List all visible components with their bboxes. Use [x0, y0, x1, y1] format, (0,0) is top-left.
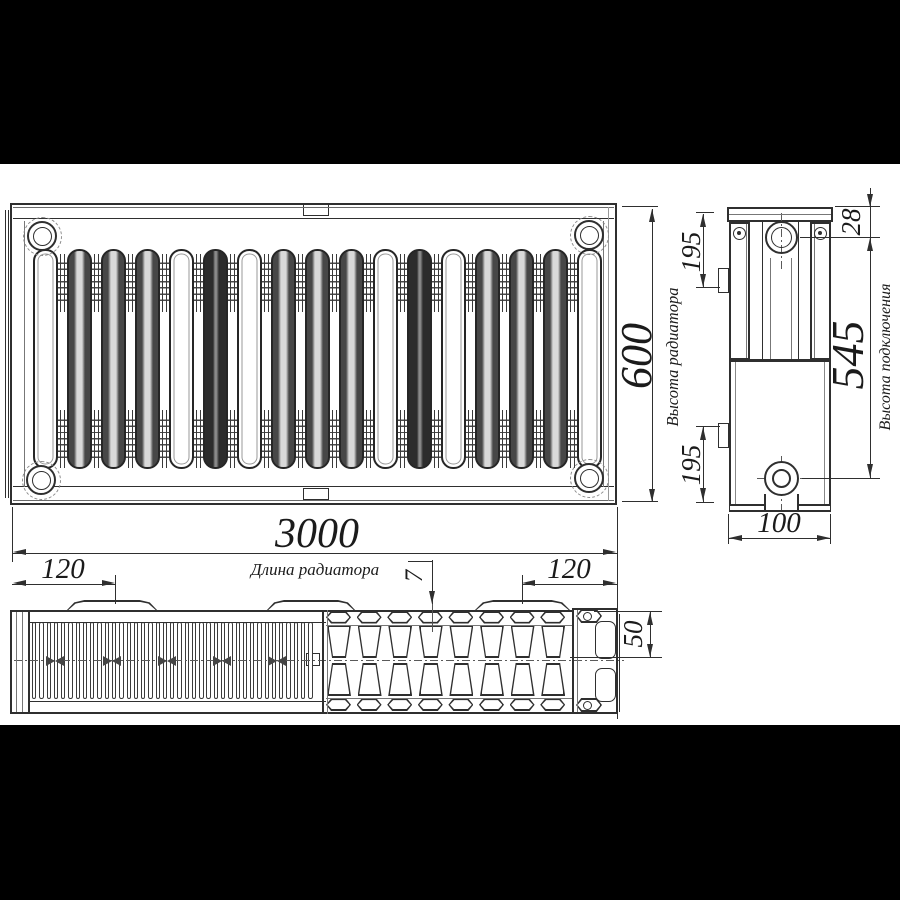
- line: [5, 210, 6, 498]
- bottom-port-inner: [772, 469, 791, 488]
- dim-bracket-left-value: 120: [18, 554, 108, 584]
- connector-tick: [570, 410, 571, 468]
- dim-height-value: 600: [613, 291, 661, 421]
- connector-tick: [472, 410, 473, 468]
- hexagon-inner: [358, 700, 380, 709]
- connector-tick: [132, 410, 133, 468]
- connector-tick: [438, 254, 439, 312]
- line: [696, 212, 714, 213]
- fin-slat: [577, 249, 602, 469]
- dim-connection-height-value: 545: [823, 290, 873, 420]
- line: [735, 362, 736, 504]
- connector-tick: [98, 254, 99, 312]
- connector-tick: [332, 410, 333, 468]
- bottom-center-clip: [303, 488, 329, 500]
- connector-tick: [434, 410, 435, 468]
- hexagon-inner: [511, 700, 533, 709]
- fin-slat: [237, 249, 262, 469]
- letterbox-bottom: [0, 725, 900, 900]
- fin-slat: [101, 249, 126, 469]
- fin-slat: [305, 249, 330, 469]
- connector-tick: [574, 254, 575, 312]
- connector-tick: [196, 410, 197, 468]
- line: [13, 207, 614, 208]
- dim-arrow: [867, 238, 873, 251]
- hexagon-inner: [450, 613, 472, 622]
- connector-tick: [162, 254, 163, 312]
- radiator-technical-drawing: 3000 Длина радиатора 600 Высота радиатор…: [0, 0, 900, 900]
- line: [326, 698, 572, 699]
- connector-tick: [438, 410, 439, 468]
- screw-inner-circle: [580, 469, 599, 488]
- cap-detail: [595, 621, 616, 659]
- line: [570, 657, 662, 658]
- dim-fin-gap-value: 7: [401, 556, 427, 596]
- connector-tick: [502, 410, 503, 468]
- hexagon-inner: [328, 613, 350, 622]
- hexagon-inner: [542, 613, 564, 622]
- hexagon-inner: [358, 613, 380, 622]
- connector-tick: [536, 410, 537, 468]
- connector-tick: [98, 410, 99, 468]
- dim-arrow: [647, 612, 653, 625]
- dim-depth-value: 100: [739, 509, 819, 537]
- line: [770, 258, 771, 360]
- topview-left-cap: [10, 610, 30, 714]
- hexagon-inner: [419, 700, 441, 709]
- side-top-cap: [727, 207, 833, 222]
- dim-length-label: Длина радиатора: [215, 558, 415, 580]
- fin-slat: [339, 249, 364, 469]
- screw-inner-circle: [32, 471, 51, 490]
- fin-slat: [33, 249, 58, 469]
- connector-tick: [400, 410, 401, 468]
- connector-tick: [60, 254, 61, 312]
- line: [791, 258, 792, 360]
- connector-tick: [60, 410, 61, 468]
- line: [30, 701, 326, 702]
- connector-tick: [128, 410, 129, 468]
- line: [729, 506, 730, 511]
- hexagon-inner: [481, 700, 503, 709]
- cap-bolt: [583, 701, 592, 710]
- dim-arrow: [647, 644, 653, 657]
- fin-slat: [407, 249, 432, 469]
- bowtie-mark: [46, 656, 55, 666]
- line: [798, 222, 799, 360]
- connector-tick: [302, 410, 303, 468]
- line: [814, 224, 815, 358]
- connector-tick: [200, 254, 201, 312]
- connector-tick: [264, 254, 265, 312]
- connector-tick: [370, 254, 371, 312]
- hexagon-inner: [542, 700, 564, 709]
- connector-tick: [268, 410, 269, 468]
- connector-tick: [400, 254, 401, 312]
- connector-tick: [366, 410, 367, 468]
- dim-length-value: 3000: [237, 512, 397, 556]
- line: [830, 514, 831, 544]
- line: [830, 506, 831, 511]
- connector-tick: [434, 254, 435, 312]
- connector-tick: [264, 410, 265, 468]
- fin-slat: [271, 249, 296, 469]
- connector-tick: [468, 254, 469, 312]
- connector-tick: [94, 254, 95, 312]
- line: [729, 214, 831, 215]
- connector-tick: [128, 254, 129, 312]
- dim-tab-top-value: 195: [676, 222, 706, 282]
- bowtie-mark: [103, 656, 112, 666]
- connector-tick: [536, 254, 537, 312]
- connector-tick: [298, 254, 299, 312]
- letterbox-top: [0, 0, 900, 164]
- connector-tick: [404, 254, 405, 312]
- connector-tick: [268, 254, 269, 312]
- line: [22, 612, 23, 712]
- connector-tick: [336, 410, 337, 468]
- hexagon-inner: [328, 700, 350, 709]
- connector-tick: [302, 254, 303, 312]
- connector-tick: [230, 410, 231, 468]
- connector-tick: [540, 254, 541, 312]
- fin-slat: [441, 249, 466, 469]
- line: [577, 610, 578, 712]
- cap-detail: [595, 668, 616, 702]
- line: [762, 222, 763, 360]
- bowtie-mark: [158, 656, 167, 666]
- line: [16, 612, 17, 712]
- line: [617, 507, 618, 719]
- dim-panel-depth-value: 50: [619, 606, 647, 662]
- line: [608, 207, 609, 501]
- hexagon-inner: [389, 613, 411, 622]
- line: [729, 359, 831, 361]
- line: [746, 224, 747, 358]
- connector-tick: [404, 410, 405, 468]
- connector-tick: [132, 254, 133, 312]
- line: [522, 575, 523, 604]
- connector-tick: [200, 410, 201, 468]
- connector-tick: [366, 254, 367, 312]
- bowtie-mark: [268, 656, 277, 666]
- line: [603, 221, 604, 487]
- bowtie-mark: [213, 656, 222, 666]
- connector-tick: [570, 254, 571, 312]
- connector-tick: [234, 254, 235, 312]
- line: [322, 610, 324, 714]
- line: [326, 625, 572, 626]
- hexagon-inner: [450, 700, 472, 709]
- dim-arrow: [867, 194, 873, 207]
- fin-slat: [135, 249, 160, 469]
- line: [802, 478, 880, 479]
- connector-tick: [234, 410, 235, 468]
- dim-arrow: [867, 464, 873, 477]
- bowtie-mark: [222, 656, 231, 666]
- hexagon-inner: [511, 613, 533, 622]
- side-tab: [718, 268, 729, 293]
- screw-inner-circle: [580, 226, 599, 245]
- connector-tick: [574, 410, 575, 468]
- bowtie-mark: [167, 656, 176, 666]
- line: [8, 210, 9, 498]
- line: [432, 604, 433, 632]
- cap-bolt: [583, 612, 592, 621]
- connector-tick: [506, 254, 507, 312]
- fin-slat: [509, 249, 534, 469]
- connector-tick: [64, 410, 65, 468]
- bowtie-mark: [112, 656, 121, 666]
- dim-arrow: [649, 209, 655, 222]
- dim-connection-height-label: Высота подключения: [876, 262, 896, 452]
- hexagon-inner: [389, 700, 411, 709]
- connector-tick: [370, 410, 371, 468]
- connector-tick: [468, 410, 469, 468]
- line: [30, 622, 326, 623]
- screw-inner-circle: [33, 227, 52, 246]
- connector-tick: [230, 254, 231, 312]
- line: [24, 221, 25, 487]
- connector-tick: [166, 410, 167, 468]
- rail-screw-dot: [737, 231, 741, 235]
- connector-tick: [166, 254, 167, 312]
- fin-slat: [203, 249, 228, 469]
- dim-height-label: Высота радиатора: [662, 272, 684, 442]
- connector-tick: [336, 254, 337, 312]
- line: [13, 486, 614, 487]
- connector-tick: [502, 254, 503, 312]
- connector-tick: [506, 410, 507, 468]
- connector-tick: [472, 254, 473, 312]
- dim-tab-bottom-value: 195: [676, 435, 706, 495]
- connector-tick: [540, 410, 541, 468]
- connector-tick: [64, 254, 65, 312]
- connector-tick: [162, 410, 163, 468]
- line: [622, 206, 658, 207]
- fin-slat: [543, 249, 568, 469]
- fin-slat: [475, 249, 500, 469]
- dim-top-port-offset-value: 28: [836, 199, 866, 245]
- bowtie-mark: [55, 656, 64, 666]
- connector-tick: [94, 410, 95, 468]
- line: [696, 287, 720, 288]
- dim-arrow: [429, 591, 435, 604]
- rail-screw-dot: [818, 231, 822, 235]
- line: [696, 502, 714, 503]
- connector-tick: [332, 254, 333, 312]
- fin-slat: [67, 249, 92, 469]
- top-port-inner: [771, 227, 792, 248]
- line: [115, 575, 116, 604]
- fin-slat: [169, 249, 194, 469]
- connector-tick: [298, 410, 299, 468]
- fin-slat: [373, 249, 398, 469]
- line: [13, 500, 614, 501]
- line: [13, 218, 614, 219]
- hexagon-inner: [419, 613, 441, 622]
- connector-tick: [196, 254, 197, 312]
- dim-bracket-right-value: 120: [524, 554, 614, 584]
- hexagon-inner: [481, 613, 503, 622]
- dim-arrow: [649, 489, 655, 502]
- bowtie-mark: [277, 656, 286, 666]
